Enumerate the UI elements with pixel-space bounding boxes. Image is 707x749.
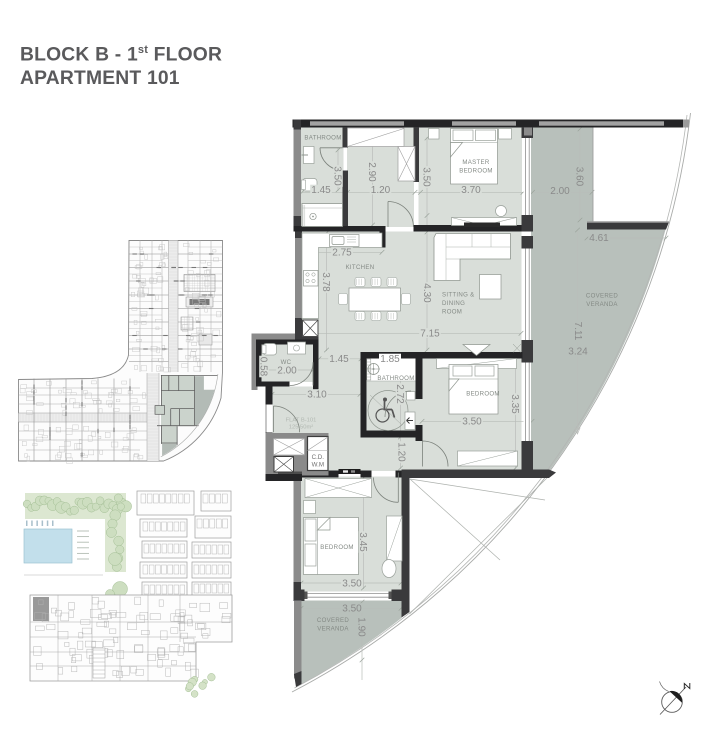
svg-text:W.M: W.M: [312, 462, 324, 469]
svg-text:4.30: 4.30: [421, 283, 432, 303]
svg-text:BEDROOM: BEDROOM: [459, 168, 493, 175]
svg-text:3.50: 3.50: [332, 166, 343, 186]
svg-text:2.75: 2.75: [332, 247, 352, 258]
svg-text:ROOM: ROOM: [442, 309, 462, 316]
svg-text:BEDROOM: BEDROOM: [320, 544, 354, 551]
svg-text:125.50m²: 125.50m²: [289, 425, 314, 431]
svg-text:1.45: 1.45: [311, 185, 331, 196]
svg-text:1.90: 1.90: [356, 617, 367, 637]
svg-text:BEDROOM: BEDROOM: [466, 391, 500, 398]
svg-text:4.61: 4.61: [589, 233, 609, 244]
svg-text:3.24: 3.24: [568, 346, 588, 357]
svg-text:2.00: 2.00: [277, 365, 297, 376]
svg-text:2.00: 2.00: [550, 186, 570, 197]
svg-text:3.78: 3.78: [320, 272, 331, 292]
svg-text:1.20: 1.20: [396, 442, 407, 462]
svg-text:BATHROOM: BATHROOM: [304, 135, 341, 142]
svg-text:COVERED: COVERED: [586, 293, 619, 300]
svg-text:1.20: 1.20: [371, 185, 391, 196]
svg-text:2.90: 2.90: [366, 162, 377, 182]
svg-text:FLAT B-101: FLAT B-101: [286, 418, 317, 424]
svg-text:1.85: 1.85: [380, 354, 400, 365]
svg-text:C.D.: C.D.: [312, 454, 325, 461]
svg-text:1.45: 1.45: [329, 354, 349, 365]
svg-text:3.50: 3.50: [342, 603, 362, 614]
svg-text:BATHROOM: BATHROOM: [377, 375, 414, 382]
svg-text:3.50: 3.50: [421, 167, 432, 187]
svg-text:3.70: 3.70: [461, 185, 481, 196]
svg-text:3.50: 3.50: [342, 578, 362, 589]
svg-text:7.11: 7.11: [572, 322, 583, 341]
svg-text:COVERED: COVERED: [317, 617, 350, 624]
svg-text:7.15: 7.15: [420, 328, 440, 339]
svg-text:VERANDA: VERANDA: [586, 301, 618, 308]
svg-text:KITCHEN: KITCHEN: [346, 264, 375, 271]
svg-text:3.50: 3.50: [462, 416, 482, 427]
svg-text:3.35: 3.35: [509, 394, 520, 414]
svg-text:3.45: 3.45: [357, 532, 368, 552]
svg-text:0.58: 0.58: [258, 357, 269, 377]
svg-text:3.10: 3.10: [307, 389, 327, 400]
svg-text:MASTER: MASTER: [462, 159, 489, 166]
svg-text:2.72: 2.72: [394, 384, 405, 404]
svg-text:SITTING &: SITTING &: [442, 292, 475, 299]
svg-text:VERANDA: VERANDA: [317, 626, 349, 633]
svg-text:3.60: 3.60: [574, 167, 585, 187]
svg-text:DINING: DINING: [442, 300, 465, 307]
